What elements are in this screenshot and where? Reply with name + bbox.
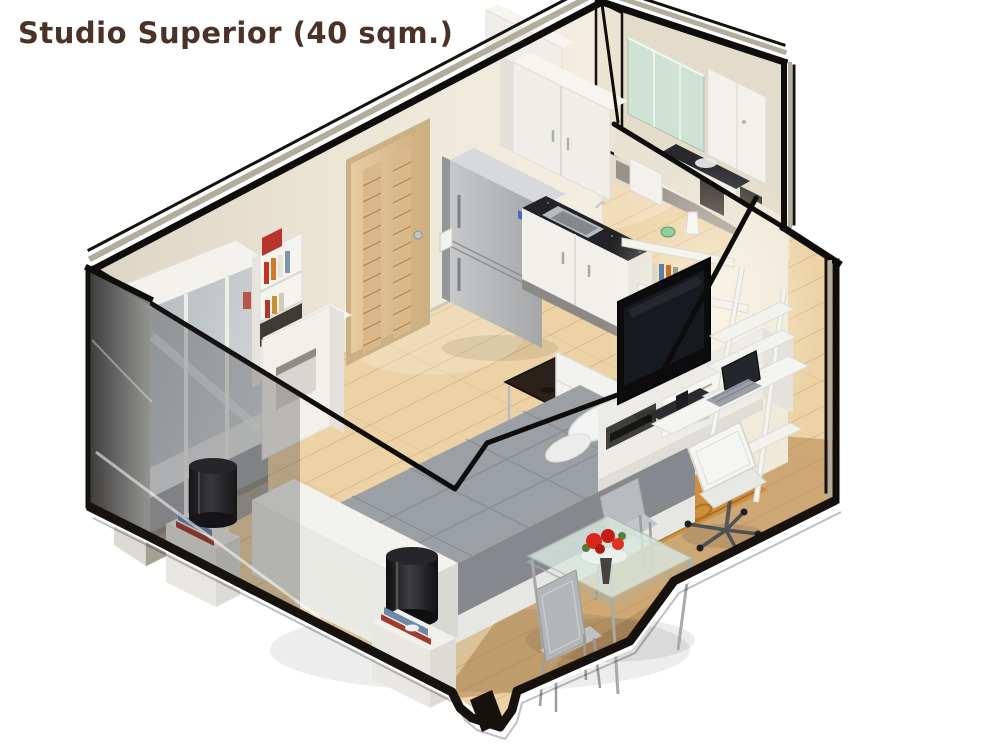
floor-plan-image: Studio Superior (40 sqm.) [0,0,1000,750]
entry-door [346,118,430,366]
floorplan-illustration [0,0,1000,750]
cup [405,625,419,632]
door-handle [414,231,422,239]
green-bowl [661,227,675,237]
white-vase [686,212,699,234]
